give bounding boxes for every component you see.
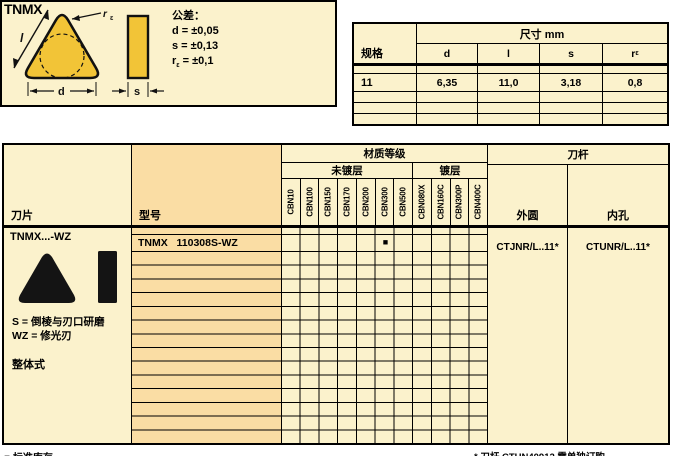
grade-group-header: 材质等级	[282, 145, 488, 163]
spec-value-cell: 11	[354, 74, 417, 92]
grade-column-header: CBN10	[282, 179, 301, 225]
empty-cell	[603, 103, 667, 114]
model-column-body: TNMX 110308S-WZ	[132, 228, 282, 443]
tolerance-box: l r ε d s 公差： d = ±0,05 s = ±0,13 rε	[0, 0, 337, 107]
coated-header: 镀层	[413, 163, 487, 178]
empty-cell	[540, 66, 603, 74]
insert-silhouette	[14, 249, 132, 307]
insert-type: 整体式	[12, 356, 131, 372]
grade-column-header: CBN150	[319, 179, 338, 225]
tolerance-s: s = ±0,13	[172, 39, 219, 54]
empty-cell	[417, 66, 478, 74]
value-re: 0,8	[603, 74, 667, 92]
value-d: 6,35	[417, 74, 478, 92]
internal-holder-value: CTUNR/L..11*	[568, 242, 668, 253]
insert-notes: S = 倒棱与刃口研磨 WZ = 修光刃	[12, 316, 131, 343]
col-header-l: l	[478, 44, 540, 66]
col-header-d: d	[417, 44, 478, 66]
insert-column-header: 刀片	[11, 207, 33, 223]
empty-cell	[603, 92, 667, 103]
empty-row	[282, 228, 487, 235]
grade-column-header: CBN500	[394, 179, 413, 225]
empty-cell	[478, 103, 540, 114]
col-header-s: s	[540, 44, 603, 66]
grade-column-header: CBN400C	[469, 179, 487, 225]
grade-column-header: CBN100	[301, 179, 320, 225]
tolerance-re: rε = ±0,1	[172, 54, 219, 73]
col-header-re: rε	[603, 44, 667, 66]
holder-group-header: 刀杆	[488, 145, 668, 165]
grade-column-header: CBN200	[357, 179, 376, 225]
uncoated-header: 未镀层	[282, 163, 413, 178]
grade-column-header: CBN300	[376, 179, 395, 225]
note-wz: WZ = 修光刃	[12, 330, 131, 344]
insert-table: 刀片 型号 材质等级 未镀层 镀层 CBN10 CBN100 CBN150 CB…	[2, 143, 670, 445]
label-d: d	[58, 86, 65, 98]
empty-cell	[354, 92, 417, 103]
spec-header-cell: 规格	[354, 24, 417, 66]
tolerance-text: 公差： d = ±0,05 s = ±0,13 rε = ±0,1	[172, 9, 219, 73]
grade-column-header: CBN080X	[413, 179, 432, 225]
insert-top-view	[26, 15, 98, 78]
empty-cell	[540, 103, 603, 114]
empty-cell	[354, 114, 417, 124]
dims-title-cell: 尺寸 mm	[417, 24, 667, 44]
internal-header: 内孔	[568, 207, 668, 223]
model-column-header: 型号	[139, 207, 161, 223]
grade-labels-row: CBN10 CBN100 CBN150 CBN170 CBN200 CBN300…	[282, 179, 488, 225]
grade-column-header: CBN300P	[451, 179, 470, 225]
tolerance-title: 公差：	[172, 9, 219, 24]
external-holder-value: CTJNR/L..11*	[488, 242, 567, 253]
empty-cell	[603, 66, 667, 74]
insert-family: TNMX...-WZ	[4, 228, 131, 243]
coating-header-row: 未镀层 镀层	[282, 163, 488, 179]
internal-holder-cell: CTUNR/L..11*	[568, 228, 668, 443]
insert-drawing: l r ε d s	[4, 2, 172, 102]
external-header: 外圆	[488, 207, 567, 223]
empty-cell	[417, 114, 478, 124]
empty-cell	[417, 92, 478, 103]
grade-grid-body: ■	[282, 228, 488, 443]
empty-cell	[417, 103, 478, 114]
grade-column-header: CBN160C	[432, 179, 451, 225]
empty-cell	[540, 114, 603, 124]
tolerance-d: d = ±0,05	[172, 24, 219, 39]
empty-cell	[603, 114, 667, 124]
empty-rows	[282, 252, 487, 444]
empty-cell	[354, 103, 417, 114]
svg-text:ε: ε	[110, 15, 114, 22]
empty-row	[132, 228, 281, 235]
external-holder-cell: CTJNR/L..11*	[488, 228, 568, 443]
grade-column-header: CBN170	[338, 179, 357, 225]
note-s: S = 倒棱与刃口研磨	[12, 316, 131, 330]
value-s: 3,18	[540, 74, 603, 92]
stock-legend: ■ 标准库存	[4, 449, 53, 456]
empty-rows	[132, 252, 281, 444]
insert-side-view	[128, 16, 148, 78]
stock-mark: ■	[376, 236, 395, 248]
catalog-page: TNMX l r ε d s	[0, 0, 674, 456]
model-cell: TNMX 110308S-WZ	[132, 235, 281, 252]
insert-column-header-cell: 刀片	[4, 145, 132, 225]
empty-cell	[478, 114, 540, 124]
external-header-cell: 外圆	[488, 165, 568, 225]
label-re: r	[103, 9, 108, 20]
spec-header: 规格	[361, 45, 383, 61]
model-column-header-cell: 型号	[132, 145, 282, 225]
empty-cell	[478, 92, 540, 103]
label-l: l	[20, 31, 24, 45]
internal-header-cell: 内孔	[568, 165, 668, 225]
dimensions-table: 规格 尺寸 mm d l s rε 11 6,35 11,0 3,18 0,8	[352, 22, 669, 126]
insert-info-cell: TNMX...-WZ S = 倒棱与刃口研磨 WZ = 修光刃 整体式	[4, 228, 132, 443]
empty-cell	[354, 66, 417, 74]
value-l: 11,0	[478, 74, 540, 92]
label-s: s	[134, 86, 140, 98]
empty-cell	[540, 92, 603, 103]
empty-cell	[478, 66, 540, 74]
holder-footnote: * 刀杆 CTUN40912 需单独订购	[474, 449, 605, 456]
